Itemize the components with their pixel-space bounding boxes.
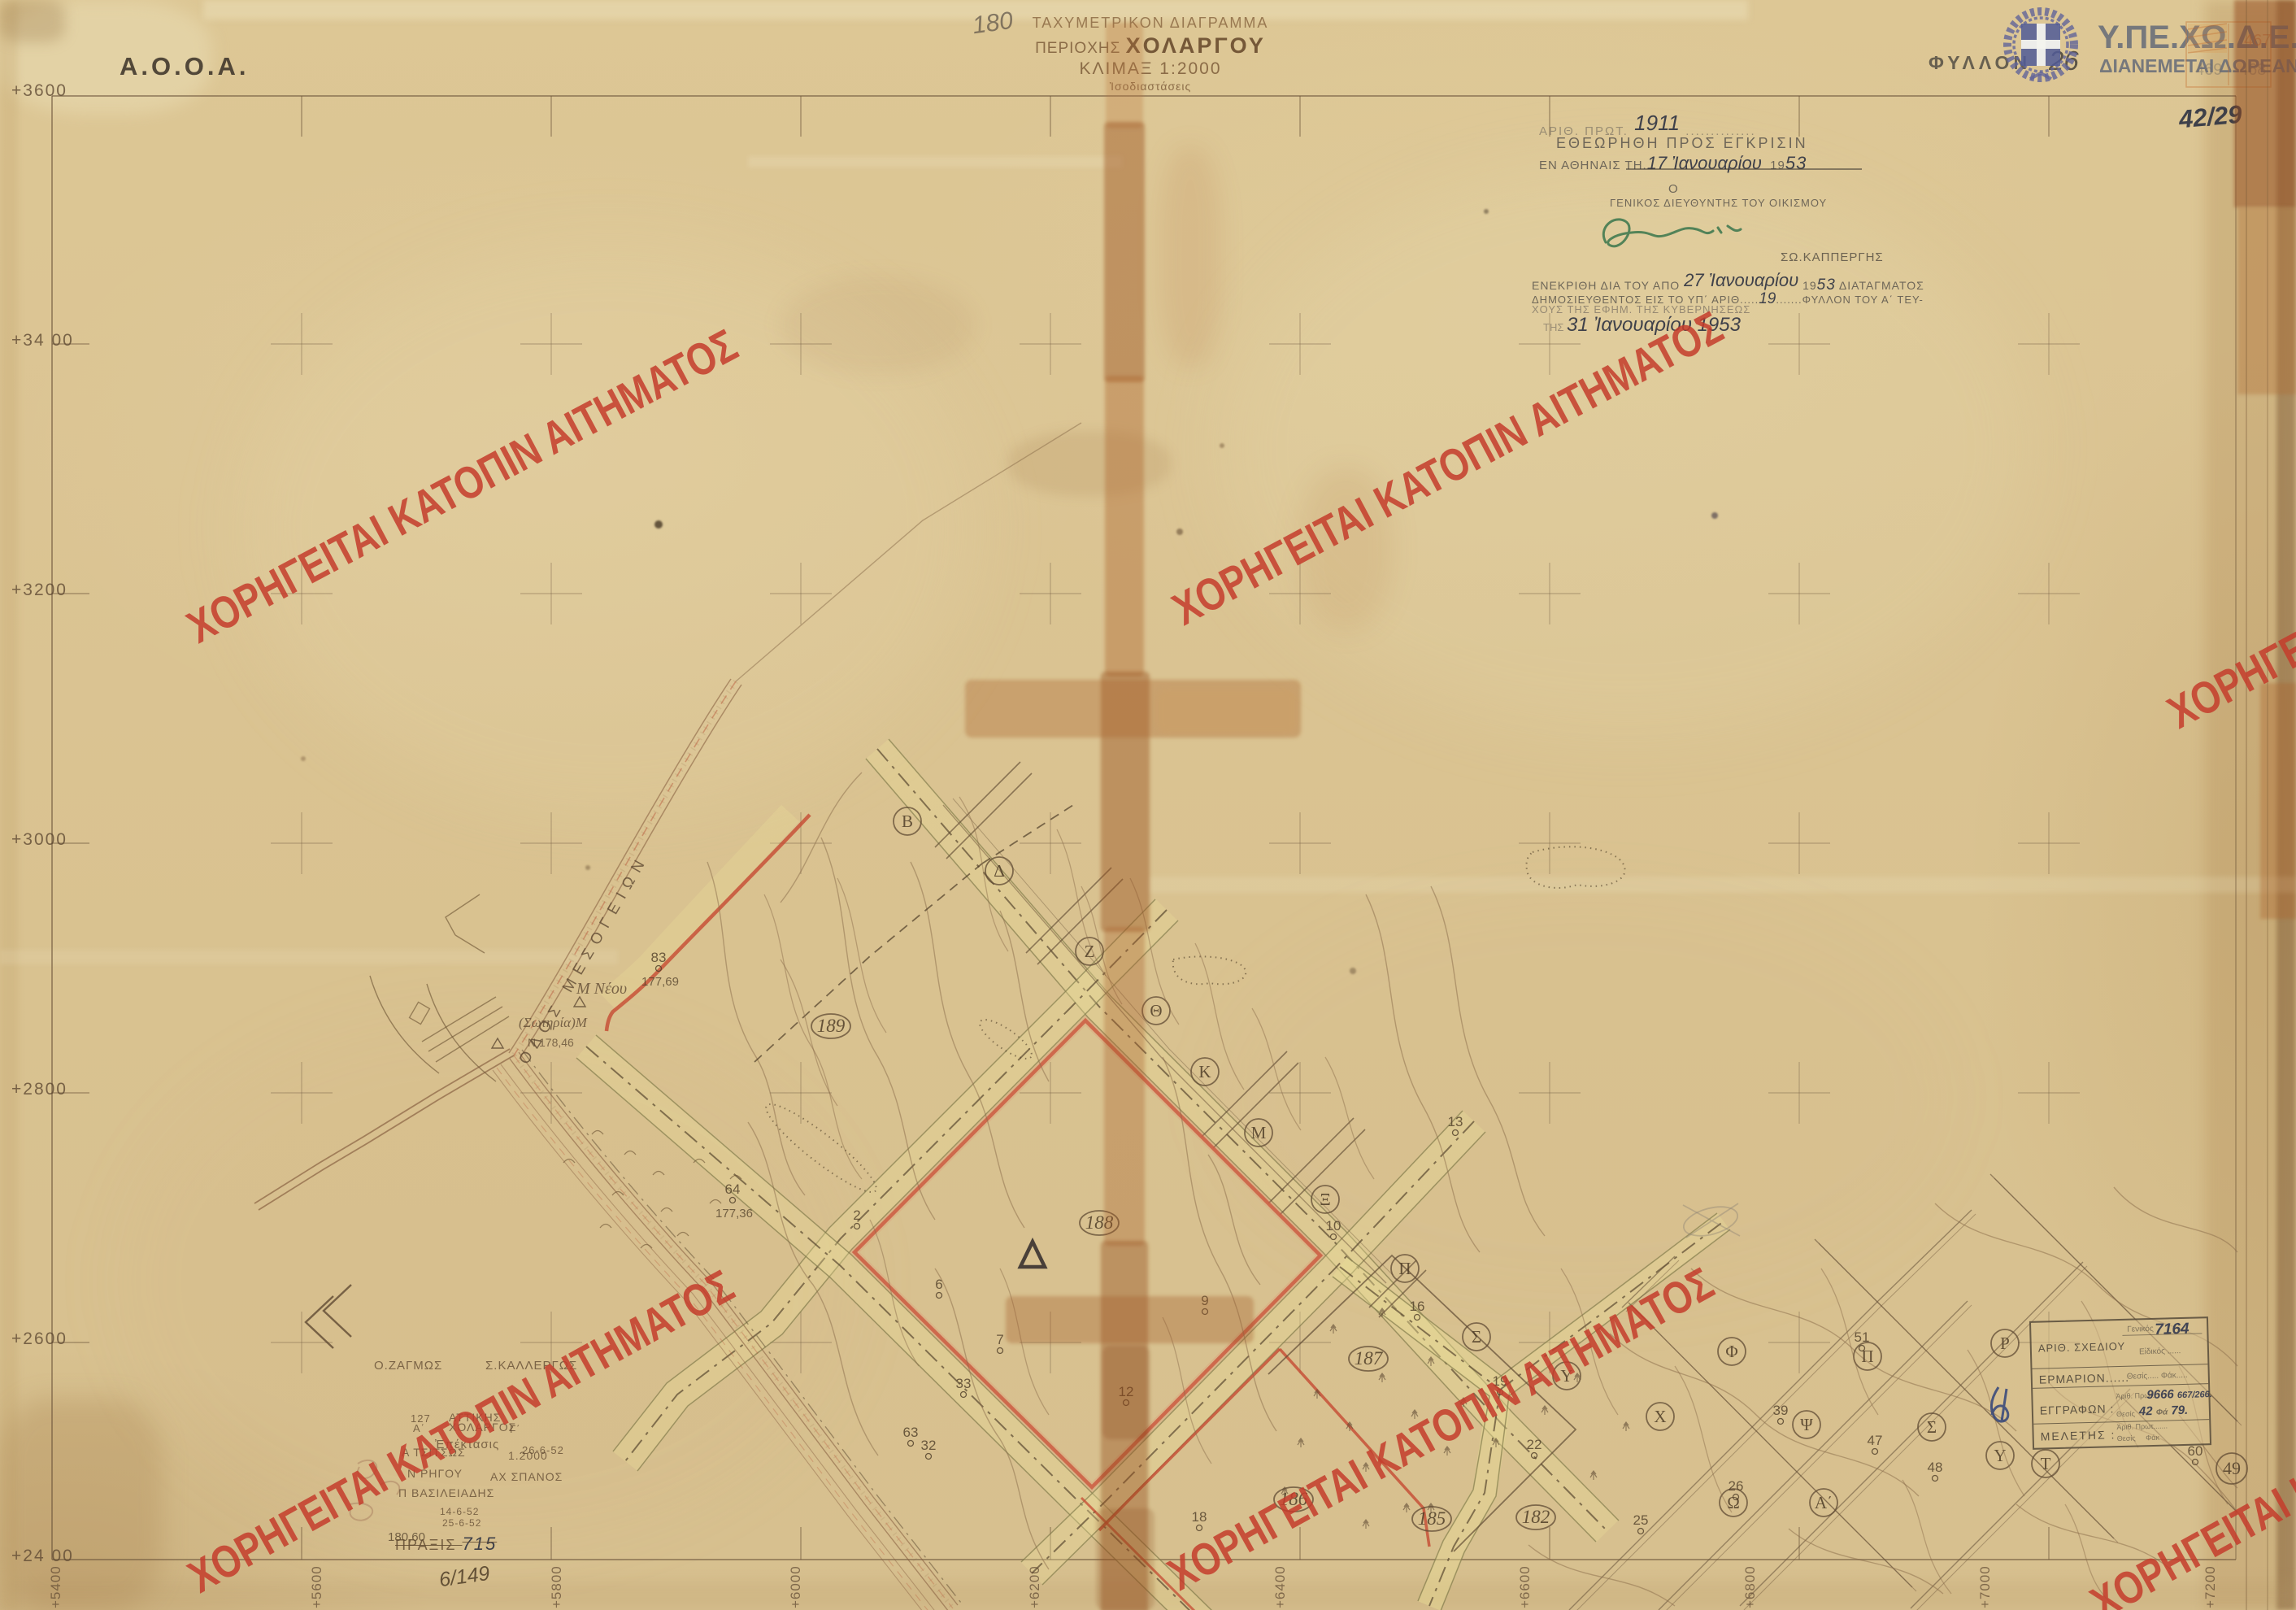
svg-text:Θ: Θ [1150,1001,1162,1020]
svg-text:49: 49 [2223,1458,2241,1478]
svg-text:32: 32 [921,1438,937,1453]
svg-text:Φ: Φ [1725,1342,1737,1361]
svg-text:Σ: Σ [1927,1417,1937,1437]
svg-text:(Σωτηρία)Μ: (Σωτηρία)Μ [519,1015,588,1030]
svg-text:6: 6 [935,1277,942,1292]
svg-text:26: 26 [1729,1478,1744,1494]
svg-text:185: 185 [1418,1508,1446,1529]
svg-text:177,36: 177,36 [715,1207,753,1221]
svg-text:Α΄: Α΄ [1815,1493,1833,1512]
svg-text:Σ: Σ [1472,1327,1481,1347]
svg-text:Μ Νέου: Μ Νέου [576,980,627,998]
svg-text:Χ: Χ [1654,1407,1666,1426]
svg-text:ΟΔΟΣ ΜΕΣΟΓΕΙΩΝ: ΟΔΟΣ ΜΕΣΟΓΕΙΩΝ [516,851,652,1068]
svg-text:25: 25 [1633,1512,1649,1528]
svg-text:83: 83 [651,950,667,965]
svg-text:51: 51 [1855,1329,1870,1345]
svg-text:Ρ: Ρ [2000,1334,2010,1353]
svg-text:39: 39 [1773,1403,1789,1418]
svg-text:7: 7 [996,1332,1003,1347]
svg-text:177,69: 177,69 [641,975,679,989]
svg-text:2: 2 [853,1207,860,1223]
svg-text:187: 187 [1355,1348,1384,1368]
svg-text:13: 13 [1448,1114,1463,1129]
svg-text:60: 60 [2188,1443,2203,1459]
svg-text:469: 469 [2195,61,2222,79]
svg-text:Ν 178,46: Ν 178,46 [528,1036,574,1049]
svg-text:182: 182 [1522,1507,1550,1527]
svg-text:Τ: Τ [2041,1454,2051,1473]
svg-text:Ψ: Ψ [1800,1415,1813,1434]
svg-text:Π: Π [1398,1259,1411,1278]
svg-text:Π: Π [1861,1347,1873,1366]
svg-text:Ξ: Ξ [1320,1190,1331,1209]
svg-text:Μ: Μ [1251,1123,1267,1142]
svg-text:Β: Β [902,812,913,831]
svg-text:48: 48 [1928,1460,1943,1475]
svg-text:16: 16 [1410,1299,1425,1314]
svg-text:18: 18 [1192,1509,1207,1525]
svg-text:33: 33 [956,1376,972,1391]
svg-text:Κ: Κ [1198,1062,1211,1081]
svg-text:47: 47 [1868,1433,1883,1448]
svg-text:22: 22 [1527,1437,1542,1452]
svg-text:10: 10 [1326,1218,1342,1234]
svg-text:63: 63 [903,1425,919,1440]
svg-text:Υ: Υ [1994,1446,2006,1465]
svg-text:64: 64 [725,1181,741,1197]
svg-text:Δ: Δ [994,861,1005,881]
svg-text:189: 189 [817,1016,846,1036]
